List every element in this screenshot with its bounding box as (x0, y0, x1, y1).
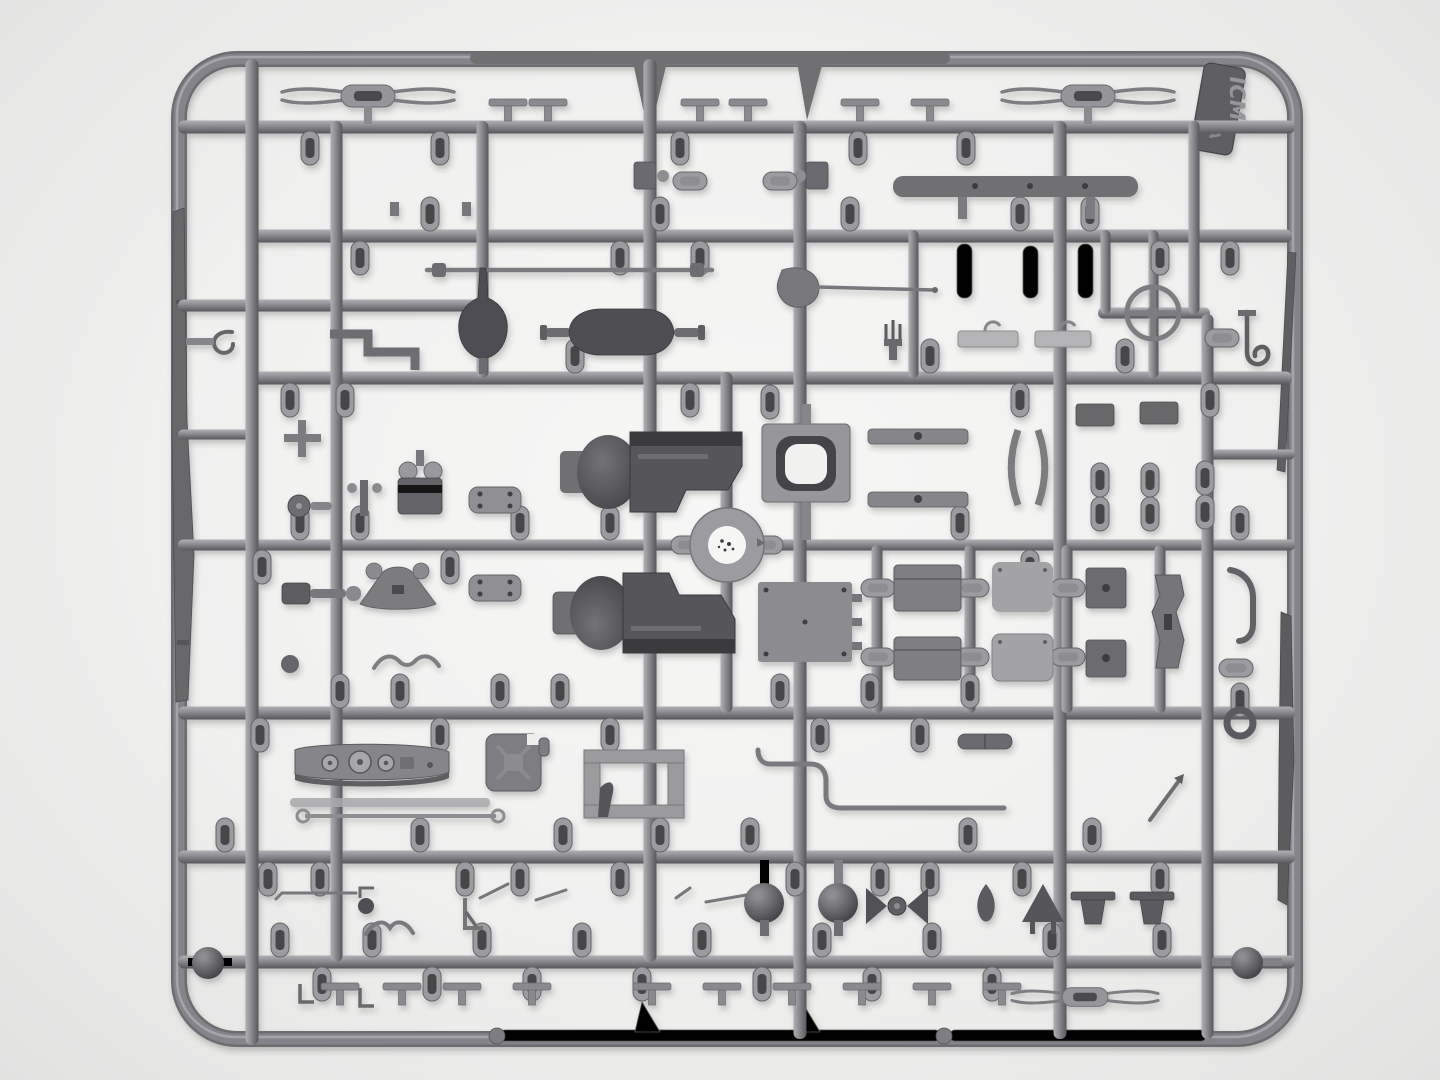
part-teardrop (977, 884, 994, 922)
part-fork-dumbbell-top-right (1002, 85, 1174, 124)
part-tie-rod (290, 798, 504, 822)
part-tool-boxes (894, 565, 961, 680)
part-curved-clips (1078, 730, 1158, 748)
part-axle-with-differential (540, 309, 705, 355)
part-hook-left (186, 332, 233, 353)
icm-tag: ICM A (1190, 62, 1258, 158)
part-sway-bar (1010, 789, 1147, 812)
part-bottom-chassis-rail-with-fins (489, 1002, 1206, 1044)
part-small-tanks (1076, 402, 1178, 426)
photo-canvas: ICM A (0, 0, 1440, 1080)
part-injection-hub (690, 508, 765, 582)
part-t-feet-top-row (489, 99, 949, 121)
part-torsion-rod (427, 263, 712, 277)
part-transfer-case-upper (560, 432, 742, 512)
part-clevis-pair-left (634, 162, 707, 190)
part-horn-pipe (1230, 570, 1253, 641)
part-caster-wheel (358, 888, 374, 914)
part-jerry-can (486, 734, 549, 791)
part-front-bumper (288, 194, 552, 216)
part-left-rifle-rail (172, 208, 194, 702)
part-pulley-wheel (288, 495, 332, 517)
part-curved-strips (1011, 430, 1045, 505)
part-dark-t-brackets (1071, 892, 1174, 924)
part-seat-cushions (992, 562, 1053, 681)
part-muffler-small (282, 583, 361, 604)
tag-brand-text: ICM (1225, 77, 1249, 121)
part-wishbone-yoke (360, 563, 436, 609)
part-plus-cross (284, 420, 321, 457)
part-latch-panels (1086, 568, 1126, 677)
part-radiator-shell (762, 404, 850, 540)
part-dashboard (295, 744, 449, 786)
part-transfer-case-lower (553, 573, 735, 653)
sprue: ICM A (172, 52, 1296, 1045)
part-thin-muffler (958, 734, 1012, 749)
part-brake-drum (398, 450, 442, 514)
part-trident-fork (884, 320, 902, 360)
part-light-plates (958, 322, 1091, 347)
sprue-photo: ICM A (0, 0, 1440, 1080)
part-step-bracket (330, 334, 415, 370)
part-differential-vertical (459, 268, 508, 374)
part-hook-claw (1238, 310, 1268, 364)
part-egg-knob (281, 655, 299, 673)
part-cylinder-trio (957, 244, 1093, 298)
part-steering-wheel (1127, 287, 1179, 339)
part-l-tube (470, 654, 503, 673)
part-fork-dumbbell-bottom (1012, 988, 1158, 1007)
part-wavy-handlebar (374, 656, 439, 668)
part-spring-plates (868, 429, 968, 507)
part-floor-panel (758, 582, 862, 662)
part-fork-dumbbell-top-left (282, 85, 454, 124)
part-slant-lever (1150, 774, 1184, 820)
